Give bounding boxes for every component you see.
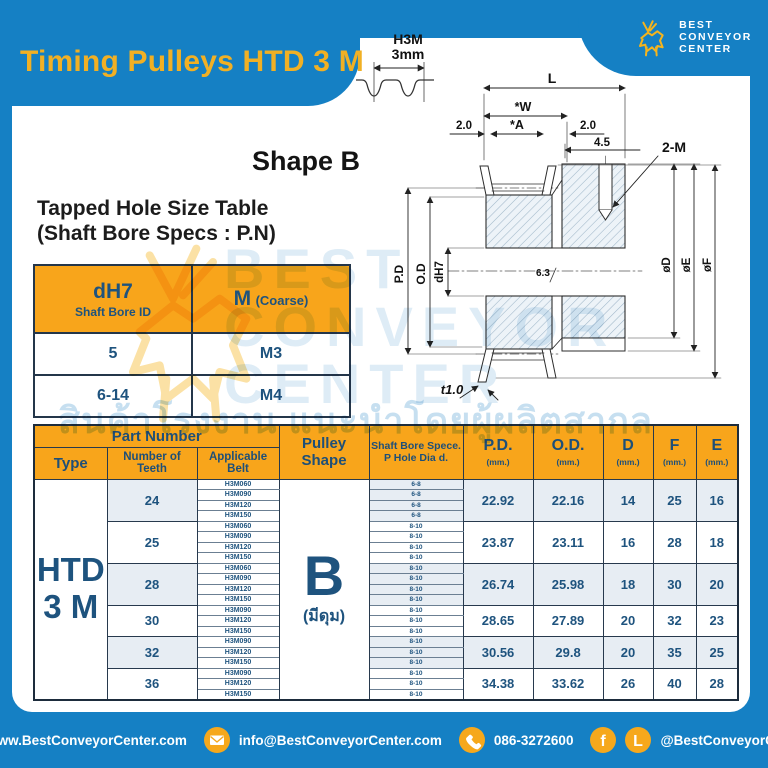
pd-cell: 28.65 [463,605,533,637]
phone-icon [459,727,485,753]
pd-cell: 26.74 [463,563,533,605]
teeth-cell: 32 [107,637,197,669]
d-cell: 26 [603,668,653,700]
svg-text:L: L [634,733,644,750]
e-cell: 18 [696,521,738,563]
footer-website[interactable]: www.BestConveyorCenter.com [0,733,187,748]
belt-cell: H3M090 [197,605,279,616]
teeth-cell: 28 [107,563,197,605]
svg-text:dH7: dH7 [434,261,446,283]
svg-text:*A: *A [510,118,524,132]
f-cell: 35 [653,637,696,669]
belt-cell: H3M120 [197,647,279,658]
bore-id-header: dH7 Shaft Bore ID [34,265,192,333]
bore-cell: 8-10 [369,647,463,658]
svg-text:2.0: 2.0 [456,120,472,132]
tapped-hole-title: Tapped Hole Size Table (Shaft Bore Specs… [37,196,276,246]
teeth-cell: 30 [107,605,197,637]
bore-cell: 6-8 [369,490,463,501]
bore-cell: 8-10 [369,584,463,595]
bore-cell: 8-10 [369,637,463,648]
bore-cell: 6-8 [369,479,463,490]
belt-cell: H3M120 [197,584,279,595]
bore-cell: 8-10 [369,553,463,564]
teeth-cell: 36 [107,668,197,700]
belt-row: HTD3 M24H3M060B(มีดุม)6-822.9222.1614251… [34,479,738,490]
f-cell: 25 [653,479,696,521]
footer-social[interactable]: @BestConveyorCenter [660,733,768,748]
pd-cell: 22.92 [463,479,533,521]
spec-table: Part Number Pulley Shape Shaft Bore Spec… [33,424,739,701]
bore-cell: 6-8 [369,500,463,511]
bore-cell: 8-10 [369,626,463,637]
belt-cell: H3M060 [197,563,279,574]
bore-cell: 8-10 [369,521,463,532]
goat-icon [632,15,672,61]
e-cell: 16 [696,479,738,521]
belt-cell: H3M090 [197,490,279,501]
header-part-number: Part Number [34,425,279,447]
header-od: O.D.(mm.) [533,425,603,479]
od-cell: 23.11 [533,521,603,563]
mail-icon [204,727,230,753]
footer-phone: 086-3272600 [494,733,574,748]
belt-type-label: H3M [393,31,423,47]
svg-text:4.5: 4.5 [594,137,611,149]
e-cell: 23 [696,605,738,637]
pulley-drawing: L *W 2.0 *A 2.0 4.5 2-M P.D O.D [390,70,750,422]
bore-cell: 8-10 [369,616,463,627]
belt-cell: H3M150 [197,658,279,669]
od-cell: 27.89 [533,605,603,637]
svg-text:øD: øD [661,257,673,272]
f-cell: 40 [653,668,696,700]
pd-cell: 30.56 [463,637,533,669]
belt-cell: H3M090 [197,532,279,543]
od-cell: 29.8 [533,637,603,669]
od-cell: 25.98 [533,563,603,605]
belt-cell: H3M150 [197,511,279,522]
bore-value: 6-14 [34,375,192,417]
f-cell: 32 [653,605,696,637]
belt-row: 28H3M0608-1026.7425.98183020 [34,563,738,574]
belt-cell: H3M120 [197,616,279,627]
pd-cell: 23.87 [463,521,533,563]
header-pulley-shape: Pulley Shape [279,425,369,479]
svg-text:2-M: 2-M [662,139,686,155]
svg-text:øE: øE [681,257,693,272]
teeth-cell: 25 [107,521,197,563]
type-cell: HTD3 M [34,479,107,700]
bore-value: 5 [34,333,192,375]
bore-cell: 8-10 [369,605,463,616]
pulley-shape-cell: B(มีดุม) [279,479,369,700]
belt-cell: H3M120 [197,679,279,690]
belt-cell: H3M150 [197,689,279,700]
header-f: F(mm.) [653,425,696,479]
d-cell: 20 [603,605,653,637]
header-type: Type [34,447,107,479]
logo: BEST CONVEYOR CENTER [578,0,768,76]
d-cell: 18 [603,563,653,605]
footer-email[interactable]: info@BestConveyorCenter.com [239,733,442,748]
bore-cell: 8-10 [369,563,463,574]
logo-text: BEST CONVEYOR CENTER [679,20,752,55]
header-e: E(mm.) [696,425,738,479]
svg-text:L: L [548,70,557,86]
svg-text:P.D: P.D [392,264,406,283]
f-cell: 28 [653,521,696,563]
belt-cell: H3M150 [197,553,279,564]
teeth-cell: 24 [107,479,197,521]
od-cell: 22.16 [533,479,603,521]
pd-cell: 34.38 [463,668,533,700]
e-cell: 25 [696,637,738,669]
header-pd: P.D.(mm.) [463,425,533,479]
belt-cell: H3M090 [197,668,279,679]
svg-text:øF: øF [702,258,714,272]
svg-text:*W: *W [515,100,532,114]
bore-cell: 8-10 [369,689,463,700]
belt-cell: H3M090 [197,637,279,648]
facebook-icon[interactable]: f [590,727,616,753]
belt-row: 30H3M0908-1028.6527.89203223 [34,605,738,616]
d-cell: 14 [603,479,653,521]
f-cell: 30 [653,563,696,605]
line-icon[interactable]: L [625,727,651,753]
svg-text:2.0: 2.0 [580,120,596,132]
tap-value: M3 [192,333,350,375]
e-cell: 20 [696,563,738,605]
belt-cell: H3M120 [197,500,279,511]
svg-text:f: f [601,733,607,750]
belt-cell: H3M090 [197,574,279,585]
d-cell: 20 [603,637,653,669]
tap-size-header: M (Coarse) [192,265,350,333]
page-title: Timing Pulleys HTD 3 M [20,45,364,79]
tapped-hole-table: dH7 Shaft Bore ID M (Coarse) 5 M3 6-14 M… [33,264,351,418]
header-belt: Applicable Belt [197,447,279,479]
belt-cell: H3M150 [197,626,279,637]
belt-cell: H3M150 [197,595,279,606]
bore-cell: 8-10 [369,542,463,553]
svg-text:t1.0: t1.0 [441,382,464,397]
shape-heading: Shape B [252,146,360,177]
header-d: D(mm.) [603,425,653,479]
title-banner: Timing Pulleys HTD 3 M [0,0,360,106]
catalog-page: BEST CONVEYOR CENTER สินค้าโรงงาน แนะนำโ… [0,0,768,768]
belt-row: 25H3M0608-1023.8723.11162818 [34,521,738,532]
belt-cell: H3M060 [197,479,279,490]
header-teeth: Number of Teeth [107,447,197,479]
bore-cell: 8-10 [369,574,463,585]
bore-cell: 8-10 [369,679,463,690]
footer: www.BestConveyorCenter.com info@BestConv… [0,712,768,768]
belt-row: 36H3M0908-1034.3833.62264028 [34,668,738,679]
d-cell: 16 [603,521,653,563]
bore-cell: 6-8 [369,511,463,522]
e-cell: 28 [696,668,738,700]
svg-text:6.3: 6.3 [536,268,550,279]
bore-cell: 8-10 [369,668,463,679]
belt-cell: H3M120 [197,542,279,553]
tap-value: M4 [192,375,350,417]
svg-text:O.D: O.D [414,263,428,285]
od-cell: 33.62 [533,668,603,700]
belt-cell: H3M060 [197,521,279,532]
bore-cell: 8-10 [369,532,463,543]
bore-cell: 8-10 [369,658,463,669]
belt-pitch-label: 3mm [392,46,425,62]
bore-cell: 8-10 [369,595,463,606]
header-shaft-bore: Shaft Bore Spece. P Hole Dia d. [369,425,463,479]
belt-row: 32H3M0908-1030.5629.8203525 [34,637,738,648]
